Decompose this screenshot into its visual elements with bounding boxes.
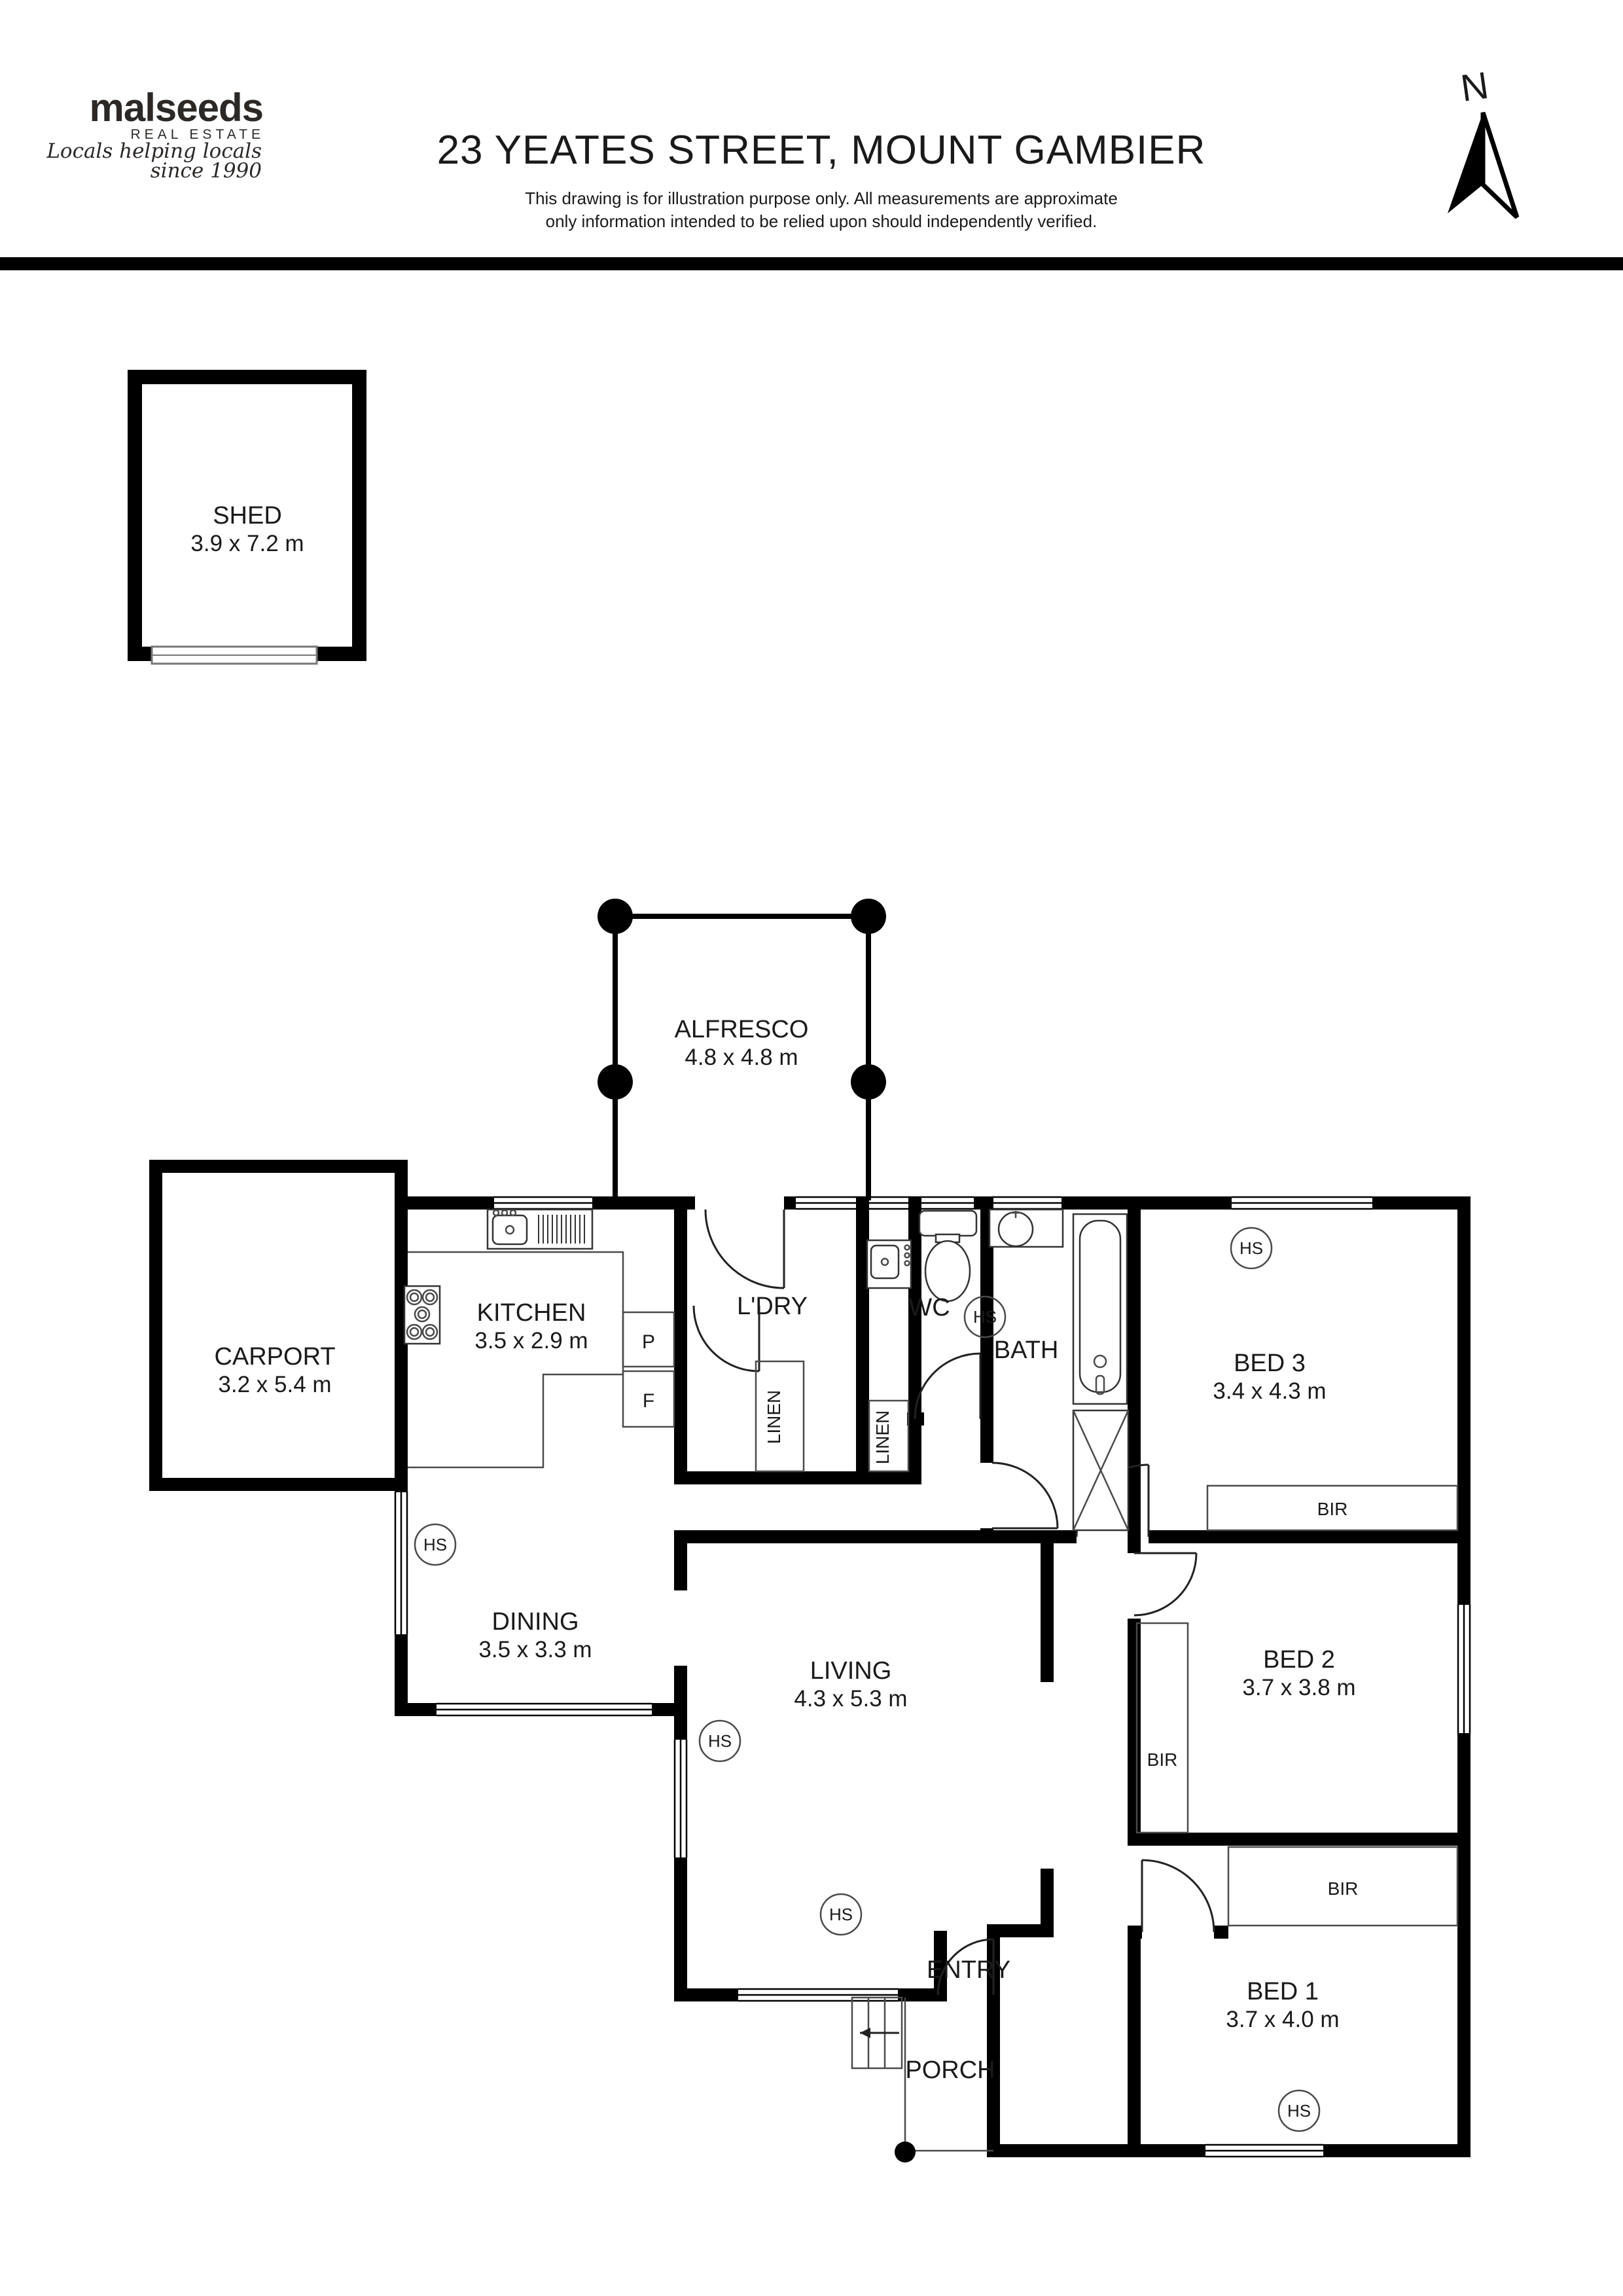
dining-label: DINING [492,1608,579,1636]
carport-label: CARPORT [214,1343,335,1371]
kitchen-bench [408,1252,623,1467]
window [1232,1197,1372,1209]
svg-text:HS: HS [708,1731,732,1751]
floorplan-page: malseeds REAL ESTATE Locals helping loca… [0,0,1623,2296]
steps [852,1998,902,2068]
bed3-dims: 3.4 x 4.3 m [1213,1378,1326,1404]
bed1-label: BED 1 [1247,1978,1319,2005]
bed3-label: BED 3 [1234,1350,1306,1377]
bath-door [992,1463,1058,1528]
shed-roller-door [152,647,317,664]
bath-label: BATH [994,1336,1059,1364]
kitchen-sink [488,1210,592,1249]
alfresco-door [705,1210,784,1288]
alfresco-label: ALFRESCO [675,1016,809,1043]
window [675,1740,687,1857]
bed1-door [1142,1860,1214,1932]
alfresco-post [851,1064,886,1100]
hs-marker-dining: HS [415,1524,455,1565]
dining-dims: 3.5 x 3.3 m [478,1637,592,1662]
disclaimer-line2: only information intended to be relied u… [546,211,1097,231]
window [796,1197,974,1209]
linen-label: LINEN [764,1390,784,1444]
page-title: 23 YEATES STREET, MOUNT GAMBIER [437,128,1206,173]
porch-post [895,2142,916,2162]
bed2-dims: 3.7 x 3.8 m [1242,1675,1355,1700]
entry-label: ENTRY [927,1956,1010,1984]
pantry-label: P [642,1331,655,1353]
hs-marker-bed1: HS [1279,2090,1319,2131]
disclaimer-line1: This drawing is for illustration purpose… [525,188,1118,208]
hs-marker-living-2: HS [821,1894,861,1935]
north-arrow-icon: N [1448,64,1517,217]
north-arrow-left-half [1448,113,1483,213]
alfresco: ALFRESCO 4.8 x 4.8 m [597,899,886,1200]
window [395,1492,407,1634]
porch-label: PORCH [905,2056,995,2084]
wc-label: WC [908,1294,950,1321]
svg-text:HS: HS [973,1307,997,1327]
bed2-label: BED 2 [1263,1646,1335,1674]
alfresco-post [851,899,886,934]
toilet [919,1211,976,1301]
window [738,1989,898,2001]
header-divider-bar [0,257,1623,270]
alfresco-post [597,1064,633,1100]
header: malseeds REAL ESTATE Locals helping loca… [0,64,1623,270]
north-label: N [1458,64,1491,110]
bed2-bir-box [1137,1623,1188,1833]
bed1-bir-label: BIR [1328,1878,1359,1899]
alfresco-dims: 4.8 x 4.8 m [685,1045,798,1070]
built-in-robes: BIR BIR BIR [1137,1486,1457,1926]
kitchen-label: KITCHEN [477,1299,586,1327]
wc-door [915,1354,980,1419]
window [1205,2145,1323,2157]
logo-name: malseeds [89,86,263,130]
window [494,1197,592,1209]
cooktop [404,1286,440,1344]
shed-label: SHED [213,502,282,529]
vanity-basin [990,1210,1063,1247]
svg-text:HS: HS [829,1905,853,1924]
bathtub [1073,1214,1127,1404]
kitchen-dims: 3.5 x 2.9 m [474,1328,588,1354]
fridge-label: F [643,1390,654,1412]
svg-text:HS: HS [1240,1238,1263,1258]
shower [1073,1410,1128,1530]
shed-dims: 3.9 x 7.2 m [190,531,304,556]
window [437,1704,652,1715]
shed: SHED 3.9 x 7.2 m [128,370,366,664]
north-arrow-right-half [1483,113,1517,217]
hs-marker-bed3: HS [1231,1228,1272,1268]
logo: malseeds REAL ESTATE Locals helping loca… [46,86,264,183]
svg-text:HS: HS [1287,2101,1311,2121]
logo-script-line2: since 1990 [151,159,262,183]
steps-arrow [860,2028,870,2038]
alfresco-post [597,899,633,934]
laundry-label: L'DRY [737,1293,808,1320]
living-label: LIVING [810,1657,892,1685]
window [1458,1605,1470,1733]
hs-marker-living-1: HS [700,1721,740,1761]
window [992,1197,1061,1209]
bed3-bir-label: BIR [1317,1499,1348,1519]
room-labels: CARPORT 3.2 x 5.4 m KITCHEN 3.5 x 2.9 m … [214,1293,1355,2084]
living-dims: 4.3 x 5.3 m [794,1686,907,1712]
carport-dims: 3.2 x 5.4 m [218,1372,331,1397]
linen-label-2: LINEN [872,1410,893,1464]
bed2-door [1134,1553,1196,1615]
svg-text:HS: HS [423,1535,447,1554]
bed1-dims: 3.7 x 4.0 m [1226,2007,1339,2032]
laundry-trough [867,1240,911,1288]
bed2-bir-label: BIR [1147,1749,1178,1770]
